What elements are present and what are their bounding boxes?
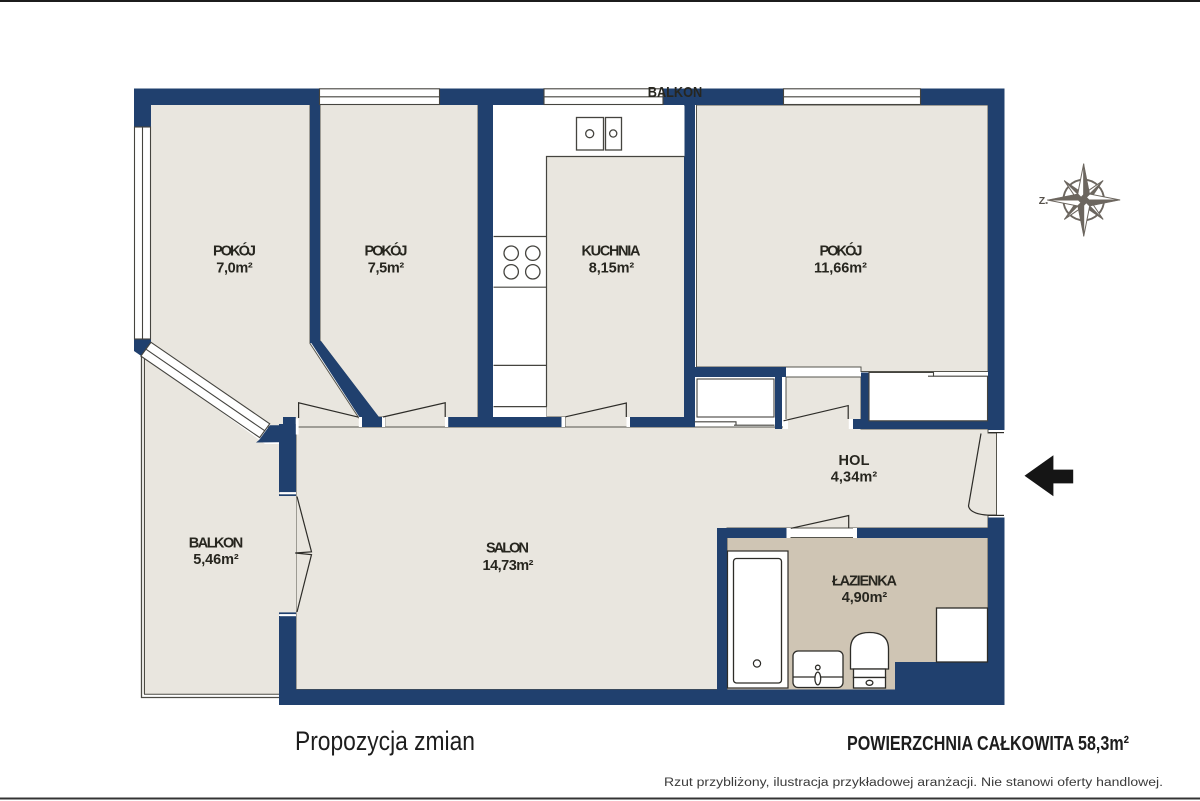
- svg-text:5,46m²: 5,46m²: [193, 552, 239, 568]
- svg-text:4,90m²: 4,90m²: [842, 590, 888, 606]
- svg-text:POWIERZCHNIA CAŁKOWITA 58,3m²: POWIERZCHNIA CAŁKOWITA 58,3m²: [847, 733, 1129, 755]
- svg-text:POKÓJ: POKÓJ: [213, 242, 256, 260]
- svg-text:7,0m²: 7,0m²: [216, 260, 253, 276]
- svg-text:8,15m²: 8,15m²: [589, 260, 635, 276]
- svg-text:BALKON: BALKON: [648, 84, 703, 101]
- svg-text:4,34m²: 4,34m²: [831, 470, 878, 486]
- svg-text:ŁAZIENKA: ŁAZIENKA: [832, 573, 898, 589]
- svg-text:KUCHNIA: KUCHNIA: [582, 244, 642, 260]
- svg-text:SALON: SALON: [486, 541, 529, 557]
- svg-text:14,73m²: 14,73m²: [483, 558, 534, 574]
- svg-text:Rzut przybliżony, ilustracja p: Rzut przybliżony, ilustracja przykładowe…: [664, 777, 1163, 789]
- svg-text:Propozycja zmian: Propozycja zmian: [295, 726, 475, 756]
- svg-text:BALKON: BALKON: [189, 535, 244, 551]
- svg-text:HOL: HOL: [839, 453, 870, 469]
- svg-text:11,66m²: 11,66m²: [814, 260, 867, 276]
- svg-text:POKÓJ: POKÓJ: [820, 242, 863, 260]
- svg-text:Z: Z: [1039, 195, 1046, 207]
- svg-text:POKÓJ: POKÓJ: [365, 242, 408, 260]
- svg-text:7,5m²: 7,5m²: [368, 260, 405, 276]
